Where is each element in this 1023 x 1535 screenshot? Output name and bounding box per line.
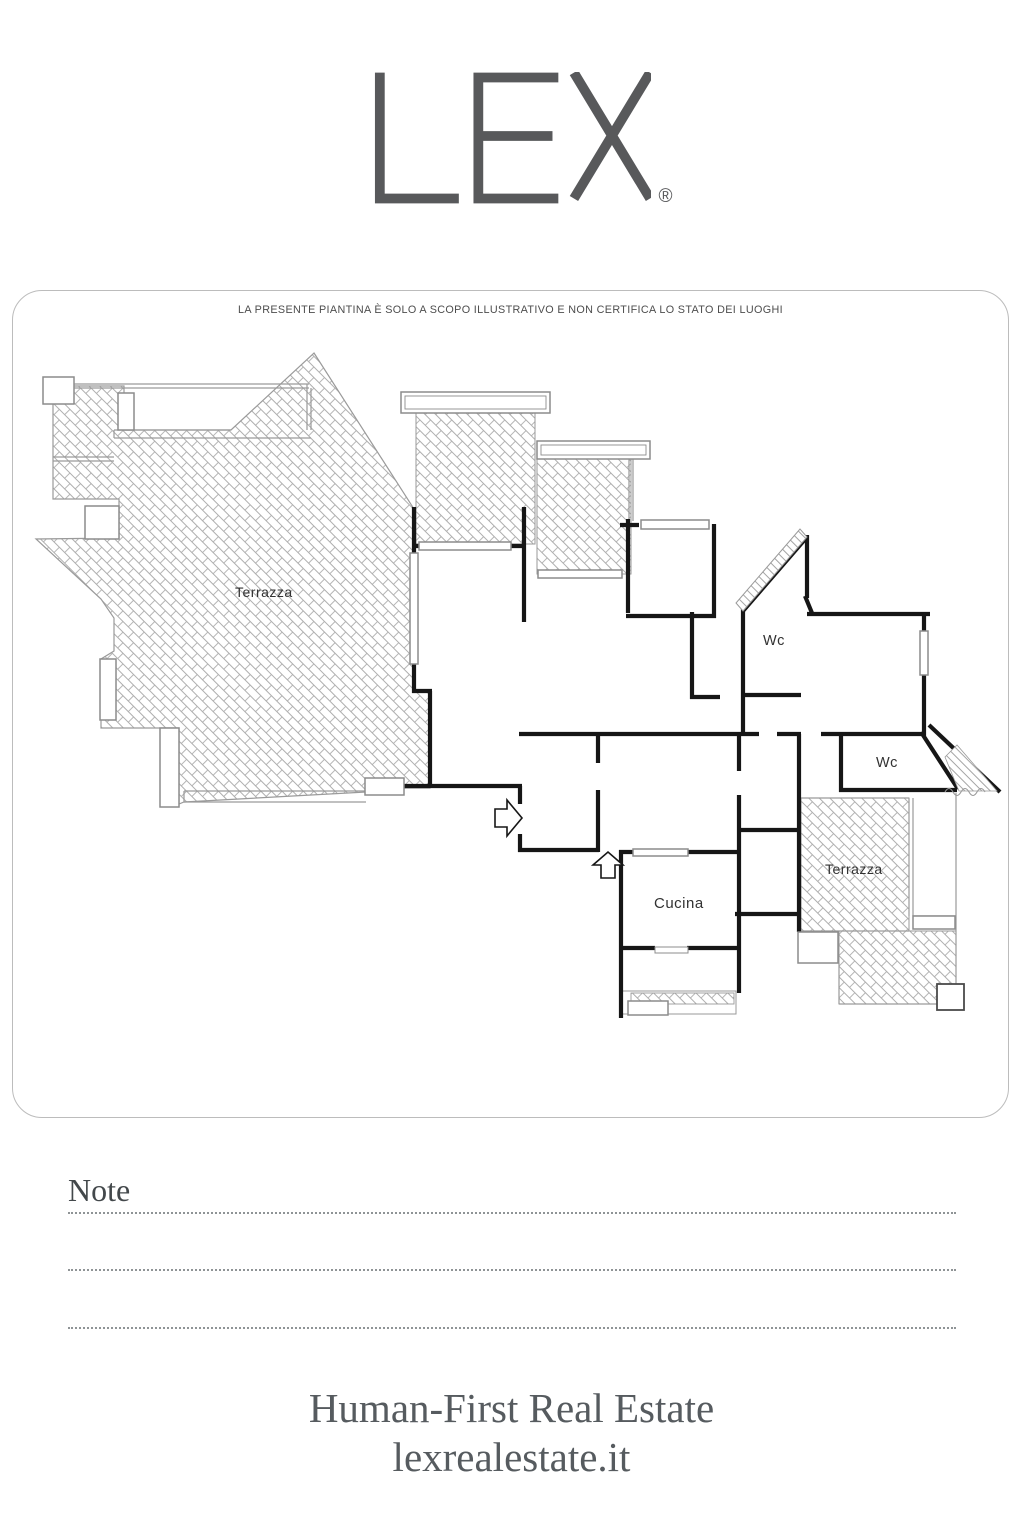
header: ® <box>0 72 1023 204</box>
note-line <box>68 1212 956 1214</box>
terrace-left <box>36 353 430 804</box>
floorplan-drawing: Terrazza Wc Wc Terrazza Cucina <box>13 291 1010 1119</box>
diagonal-window-strips <box>736 529 997 796</box>
entrance-arrow-main <box>495 800 522 836</box>
note-line <box>68 1327 956 1329</box>
lex-logo-letter-e <box>478 78 558 199</box>
footer: Human-First Real Estate lexrealestate.it <box>0 1384 1023 1482</box>
footer-tagline: Human-First Real Estate <box>0 1384 1023 1432</box>
label-wc-right: Wc <box>876 755 898 771</box>
notes-title: Note <box>68 1172 130 1209</box>
lex-logo-letter-l <box>379 73 458 199</box>
label-wc-top: Wc <box>763 633 785 649</box>
label-terrace-left: Terrazza <box>235 584 293 600</box>
label-terrace-right: Terrazza <box>825 861 883 877</box>
lex-logo <box>373 72 651 204</box>
registered-trademark: ® <box>659 186 673 208</box>
terrace-right <box>801 798 956 1004</box>
floorplan-card: LA PRESENTE PIANTINA È SOLO A SCOPO ILLU… <box>12 290 1009 1118</box>
entrance-arrows <box>495 800 623 878</box>
entrance-arrow-secondary <box>593 852 623 878</box>
note-line <box>68 1269 956 1271</box>
label-kitchen: Cucina <box>654 895 704 912</box>
lex-logo-letter-x <box>573 73 649 199</box>
footer-website: lexrealestate.it <box>0 1432 1023 1482</box>
